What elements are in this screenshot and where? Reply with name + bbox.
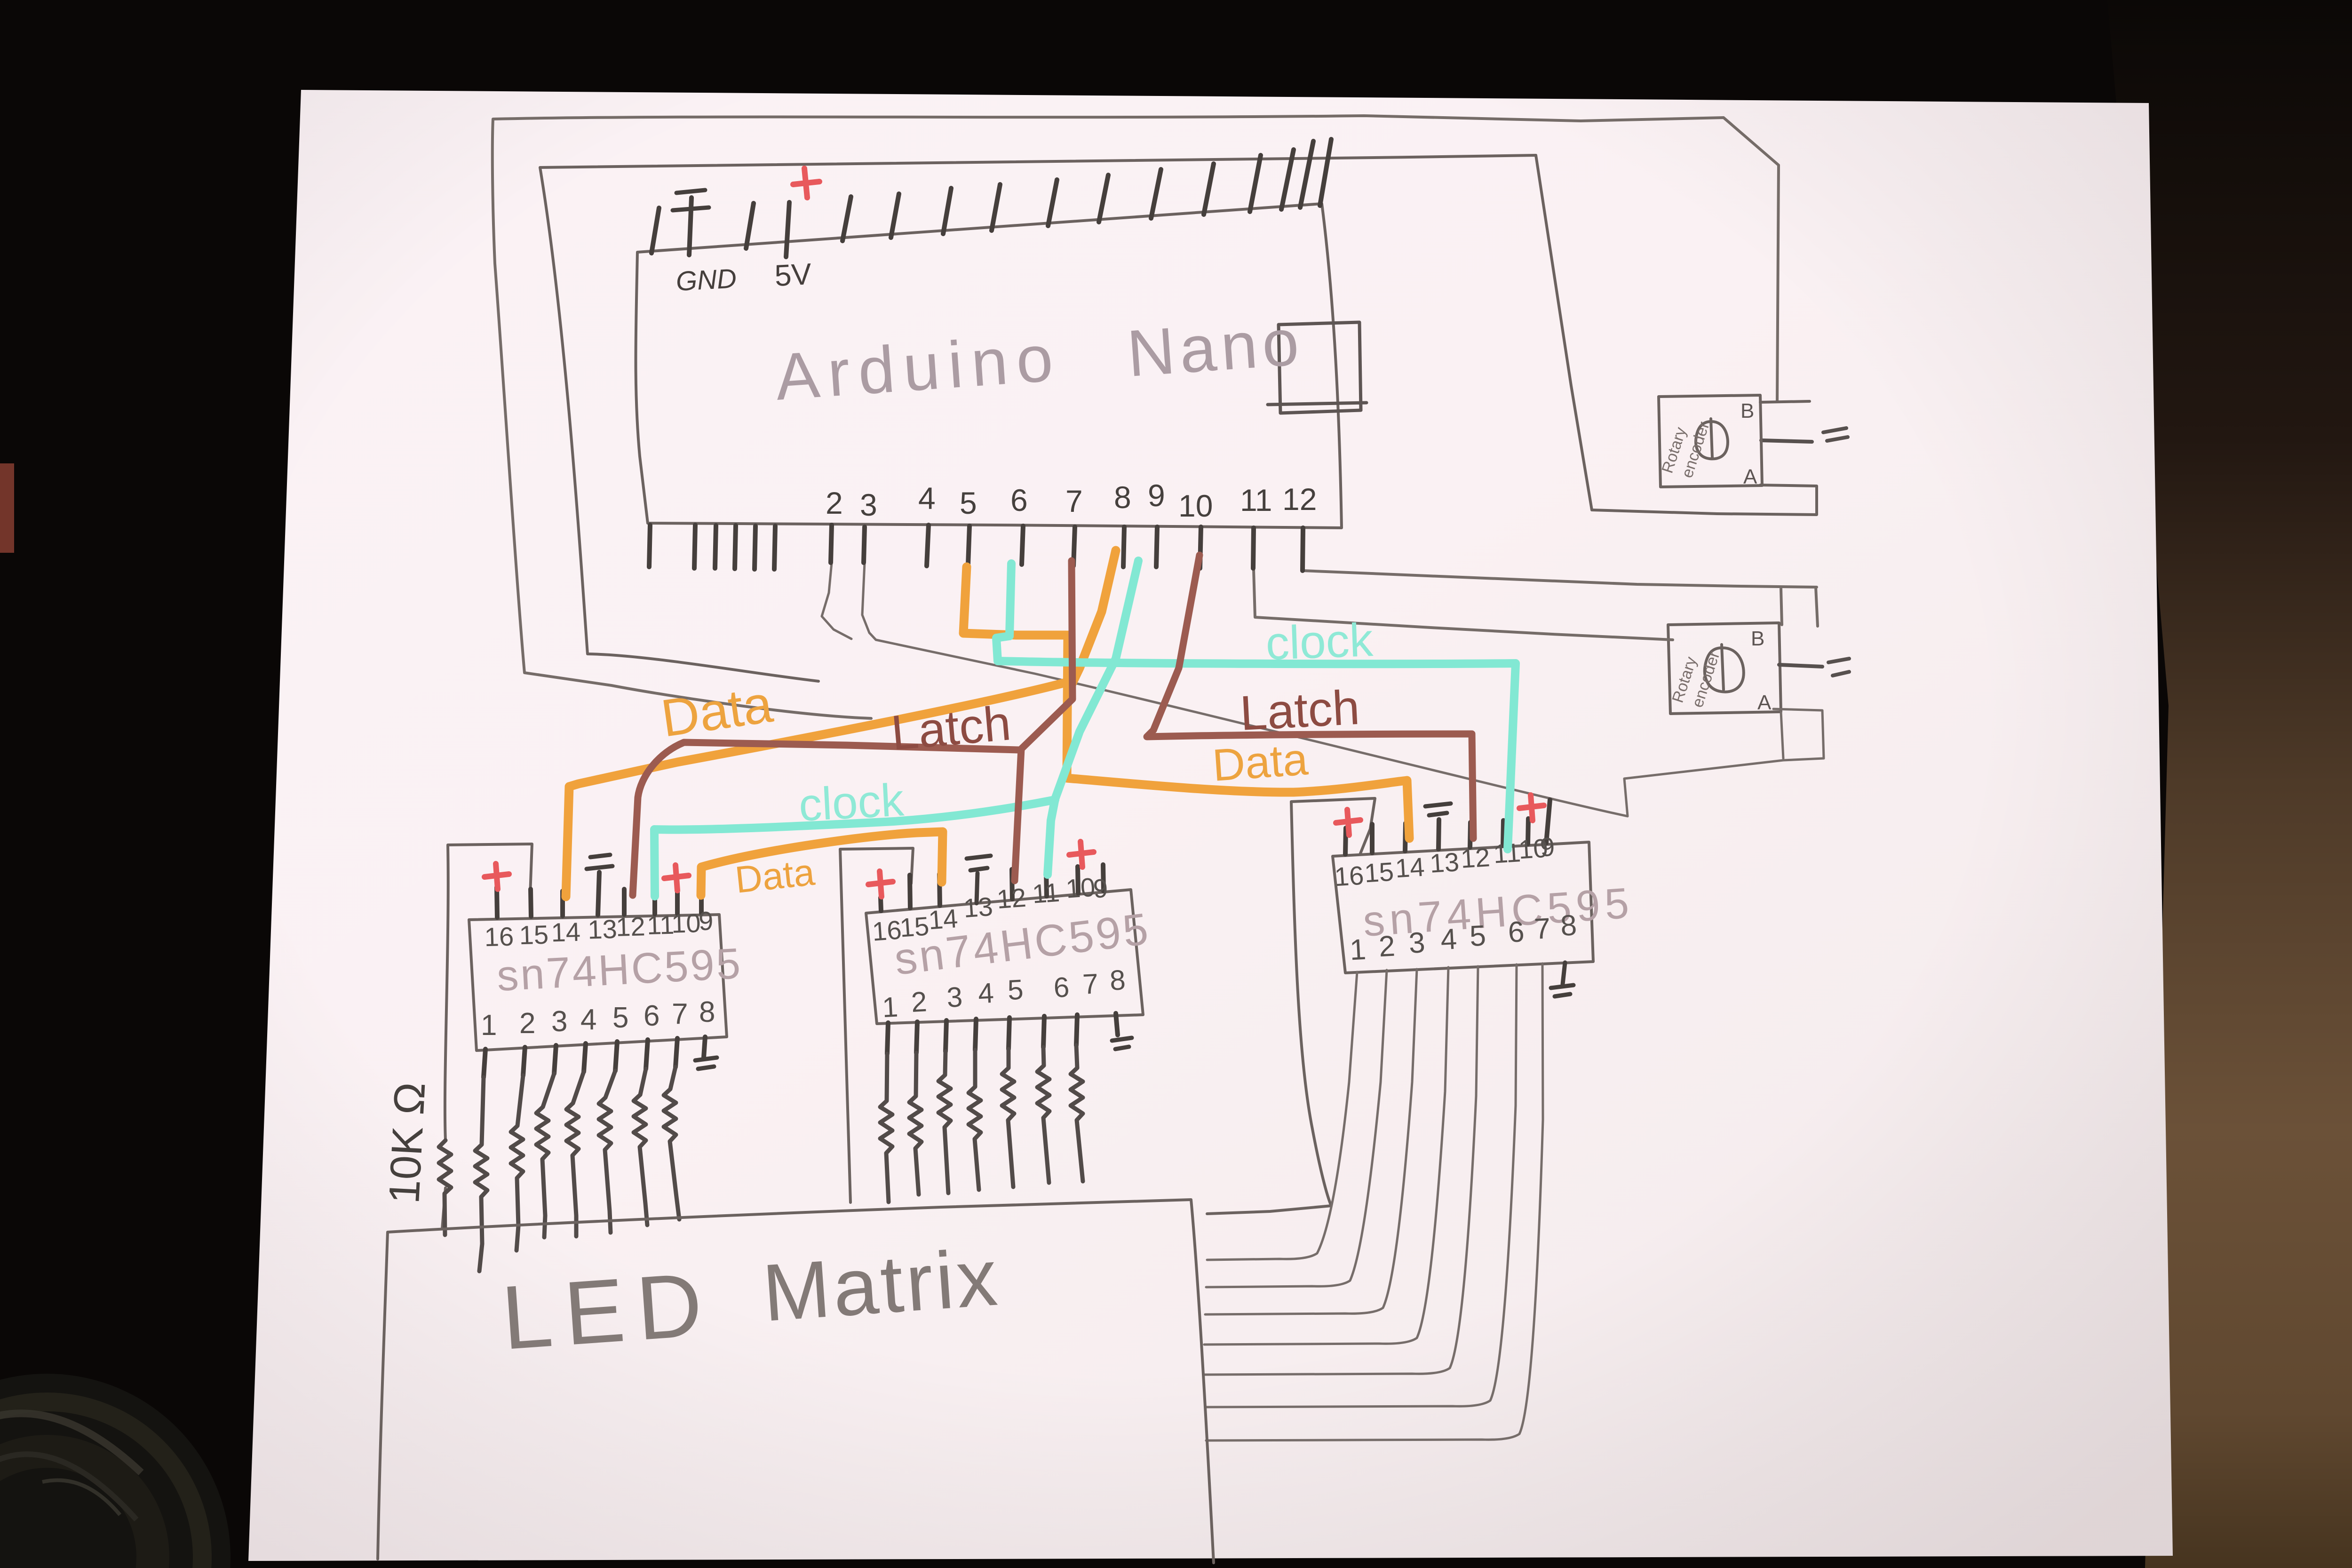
svg-text:2: 2 [826,486,843,520]
svg-text:12: 12 [1282,482,1317,517]
svg-text:11: 11 [1240,483,1272,517]
svg-text:Data: Data [1211,734,1310,791]
svg-text:5: 5 [612,1002,628,1034]
svg-text:4: 4 [1440,923,1458,956]
svg-text:B: B [1751,627,1764,650]
svg-text:Latch: Latch [1239,680,1361,741]
svg-text:15: 15 [519,920,549,950]
svg-text:4: 4 [580,1003,596,1036]
svg-text:4: 4 [977,977,995,1010]
svg-text:8: 8 [1114,480,1131,515]
svg-text:Matrix: Matrix [760,1232,1002,1338]
svg-text:6: 6 [1010,483,1028,517]
svg-text:GND: GND [675,263,737,297]
svg-text:10K Ω: 10K Ω [380,1081,434,1205]
svg-text:8: 8 [699,996,715,1028]
svg-text:1: 1 [882,991,899,1024]
svg-text:14: 14 [551,917,581,947]
svg-text:7: 7 [1065,484,1083,518]
svg-text:12: 12 [996,883,1027,914]
svg-text:10: 10 [1178,488,1213,523]
svg-text:9: 9 [698,906,714,936]
svg-text:5: 5 [960,486,977,520]
svg-text:16: 16 [1334,860,1365,892]
svg-text:Latch: Latch [889,696,1013,761]
svg-text:A: A [1743,465,1757,488]
svg-text:13: 13 [588,914,618,945]
svg-text:14: 14 [1394,852,1425,883]
svg-text:6: 6 [1053,971,1070,1003]
svg-text:7: 7 [1534,912,1551,946]
svg-text:4: 4 [918,481,936,516]
svg-text:13: 13 [1429,847,1460,878]
svg-text:LED: LED [499,1253,717,1369]
svg-text:3: 3 [860,487,877,522]
svg-text:13: 13 [962,891,994,923]
svg-text:7: 7 [672,998,688,1030]
svg-text:10: 10 [671,908,701,939]
svg-text:5V: 5V [774,257,812,293]
svg-text:9: 9 [1092,873,1109,904]
svg-text:2: 2 [910,986,928,1018]
svg-text:1: 1 [1349,933,1367,967]
svg-text:12: 12 [616,911,646,942]
svg-text:Nano: Nano [1125,304,1306,390]
svg-text:1: 1 [481,1009,497,1042]
svg-text:16: 16 [484,922,514,952]
svg-text:10: 10 [1065,872,1097,904]
svg-text:15: 15 [1364,857,1395,888]
svg-text:2: 2 [519,1007,535,1040]
svg-text:A: A [1757,691,1772,714]
svg-text:clock: clock [1265,613,1375,670]
svg-text:8: 8 [1560,909,1578,942]
svg-text:7: 7 [1082,968,1099,1000]
svg-text:8: 8 [1109,964,1126,996]
svg-text:11: 11 [1031,877,1060,909]
svg-text:6: 6 [644,1000,660,1032]
svg-text:9: 9 [1539,832,1556,862]
svg-text:3: 3 [1408,926,1426,960]
svg-text:2: 2 [1378,930,1396,963]
svg-text:clock: clock [797,773,906,831]
svg-text:B: B [1740,399,1754,422]
svg-text:6: 6 [1507,915,1525,949]
svg-text:12: 12 [1460,842,1491,874]
svg-text:9: 9 [1148,478,1165,513]
svg-text:Data: Data [733,851,817,901]
svg-text:5: 5 [1469,919,1486,953]
svg-text:5: 5 [1007,974,1024,1006]
svg-text:11: 11 [646,910,675,940]
svg-text:3: 3 [946,981,963,1013]
svg-text:3: 3 [551,1005,567,1038]
